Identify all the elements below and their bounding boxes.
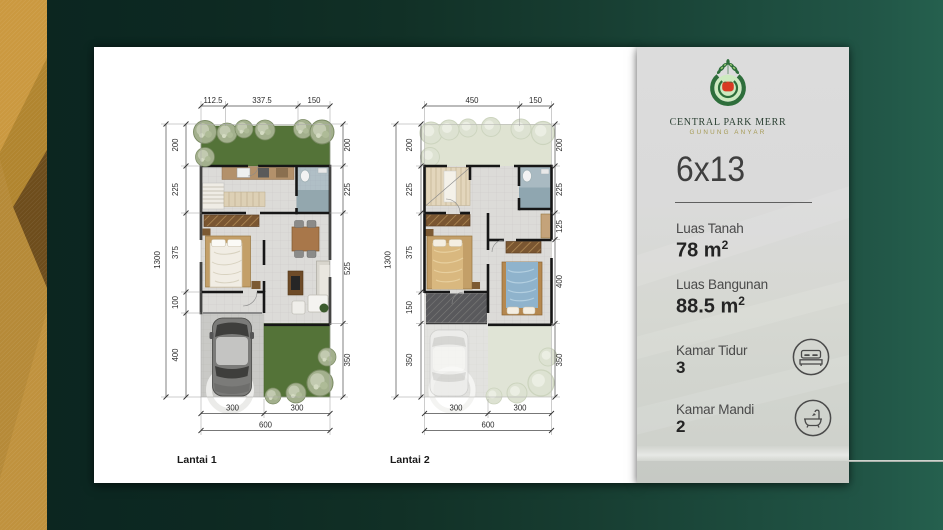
svg-text:Lantai 2: Lantai 2 xyxy=(390,454,430,466)
svg-text:200: 200 xyxy=(343,138,352,152)
svg-text:225: 225 xyxy=(343,182,352,196)
svg-text:1300: 1300 xyxy=(153,251,162,269)
svg-text:150: 150 xyxy=(307,96,321,105)
svg-text:300: 300 xyxy=(449,404,463,413)
svg-text:Lantai 1: Lantai 1 xyxy=(177,454,217,466)
svg-text:600: 600 xyxy=(259,421,273,430)
svg-text:375: 375 xyxy=(171,245,180,259)
svg-text:300: 300 xyxy=(226,404,240,413)
svg-text:1300: 1300 xyxy=(384,251,393,269)
svg-text:225: 225 xyxy=(171,182,180,196)
svg-text:337.5: 337.5 xyxy=(252,96,272,105)
svg-text:150: 150 xyxy=(529,96,543,105)
svg-text:125: 125 xyxy=(555,219,564,233)
svg-text:350: 350 xyxy=(555,353,564,367)
svg-text:600: 600 xyxy=(481,421,495,430)
svg-text:100: 100 xyxy=(171,295,180,309)
svg-text:375: 375 xyxy=(405,245,414,259)
svg-text:200: 200 xyxy=(555,138,564,152)
svg-text:450: 450 xyxy=(465,96,479,105)
svg-text:300: 300 xyxy=(513,404,527,413)
svg-text:200: 200 xyxy=(405,138,414,152)
svg-text:112.5: 112.5 xyxy=(204,96,224,105)
svg-text:400: 400 xyxy=(555,274,564,288)
svg-text:200: 200 xyxy=(171,138,180,152)
svg-text:225: 225 xyxy=(555,182,564,196)
svg-text:525: 525 xyxy=(343,261,352,275)
svg-text:400: 400 xyxy=(171,348,180,362)
svg-text:350: 350 xyxy=(343,353,352,367)
svg-text:350: 350 xyxy=(405,353,414,367)
svg-text:300: 300 xyxy=(290,404,304,413)
svg-text:150: 150 xyxy=(405,300,414,314)
svg-text:225: 225 xyxy=(405,182,414,196)
